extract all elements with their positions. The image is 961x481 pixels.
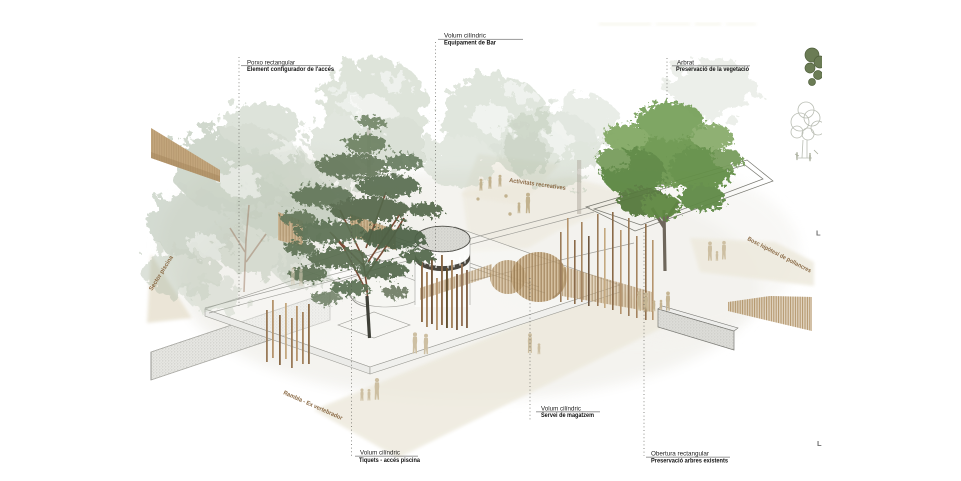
svg-text:L: L — [816, 229, 821, 238]
svg-text:Preservació de la vegetació: Preservació de la vegetació — [676, 67, 749, 73]
svg-text:Servei de magatzem: Servei de magatzem — [541, 413, 594, 419]
svg-text:Preservació arbres existents: Preservació arbres existents — [651, 459, 729, 465]
svg-text:Element configurador de l'accé: Element configurador de l'accés — [247, 67, 335, 73]
svg-text:Equipament de Bar: Equipament de Bar — [444, 40, 497, 46]
svg-text:Arbrat: Arbrat — [677, 60, 694, 66]
svg-text:Volum cilíndric: Volum cilíndric — [541, 406, 581, 412]
svg-text:Volum cilíndric: Volum cilíndric — [444, 34, 486, 40]
svg-text:Volum cilíndric: Volum cilíndric — [360, 451, 400, 457]
svg-text:L: L — [817, 439, 822, 448]
svg-text:Obertura rectangular: Obertura rectangular — [651, 452, 709, 458]
svg-text:Tiquets - accés piscina: Tiquets - accés piscina — [359, 458, 421, 464]
svg-text:Porxo rectangular: Porxo rectangular — [247, 60, 295, 66]
